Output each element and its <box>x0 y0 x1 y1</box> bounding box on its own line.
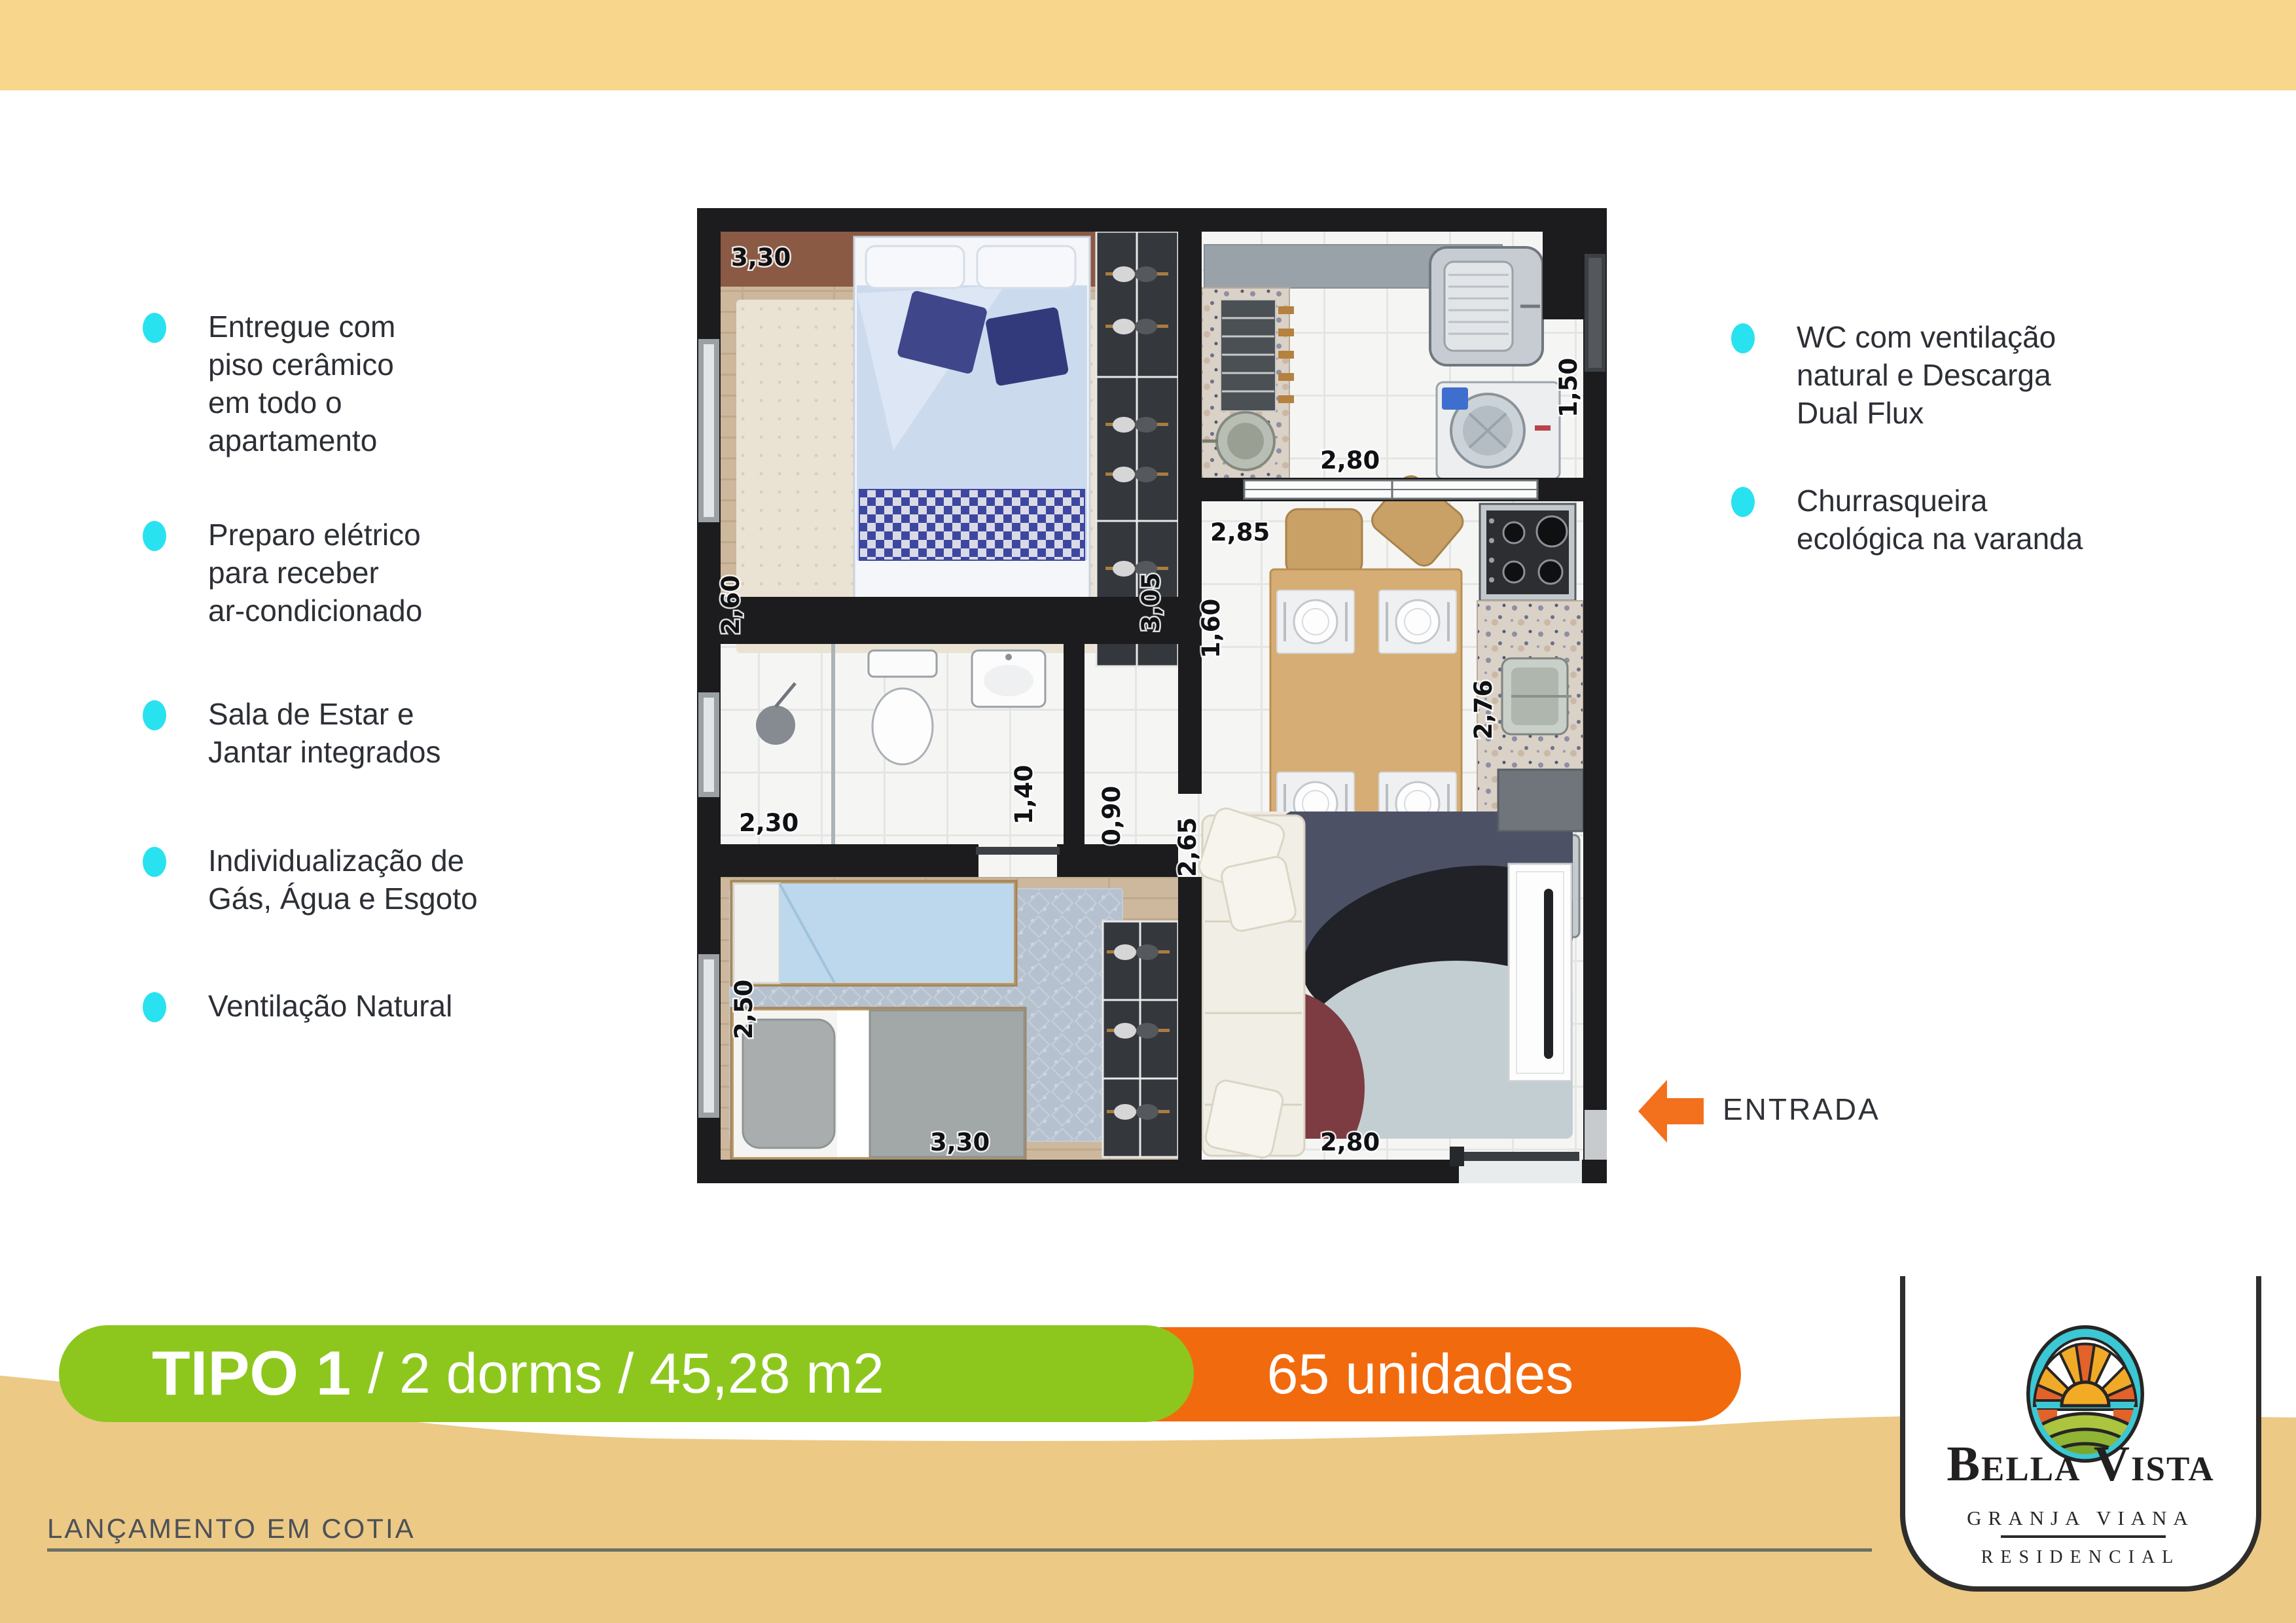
top-band <box>0 0 2296 90</box>
dim-label: 3,30 <box>930 1128 990 1156</box>
dim-label: 2,60 <box>717 575 745 635</box>
units-pill-label: 65 unidades <box>1267 1342 1574 1407</box>
dim-label: 2,65 <box>1174 817 1202 877</box>
dim-label: 3,30 <box>731 243 791 272</box>
feature-text: Ventilação Natural <box>208 987 452 1025</box>
logo-tagline: RESIDENCIAL <box>1905 1547 2256 1568</box>
dim-label: 1,40 <box>1010 765 1038 825</box>
feature-text: Individualização de Gás, Água e Esgoto <box>208 842 478 918</box>
feature-item: Ventilação Natural <box>143 987 452 1025</box>
bullet-icon <box>143 847 166 877</box>
bullet-icon <box>1731 487 1755 517</box>
bullet-icon <box>143 700 166 730</box>
feature-text: WC com ventilação natural e Descarga Dua… <box>1797 318 2056 432</box>
entrance-arrow-icon <box>1638 1079 1704 1144</box>
dim-label: 2,76 <box>1469 680 1498 740</box>
dim-label: 3,05 <box>1137 573 1165 632</box>
feature-text: Churrasqueira ecológica na varanda <box>1797 482 2083 558</box>
flyer-page: Entregue com piso cerâmico em todo o apa… <box>0 0 2296 1623</box>
launch-text: LANÇAMENTO EM COTIA <box>47 1513 416 1544</box>
type-pill-bold: TIPO 1 <box>152 1338 351 1410</box>
logo-name: Bella Vista <box>1905 1436 2256 1493</box>
bullet-icon <box>143 313 166 343</box>
type-pill: TIPO 1 / 2 dorms / 45,28 m2 <box>59 1325 1194 1422</box>
feature-item: Preparo elétrico para receber ar-condici… <box>143 516 422 630</box>
living-room <box>1196 750 1607 1183</box>
dim-label: 2,50 <box>730 980 758 1039</box>
floor-plan: 3,30 2,60 3,05 2,85 2,80 1,50 1,60 2,76 … <box>697 208 1607 1183</box>
dim-label: 2,30 <box>739 809 798 837</box>
logo-subtitle: GRANJA VIANA <box>1905 1507 2256 1530</box>
dim-label: 2,85 <box>1210 518 1270 546</box>
dim-label: 2,80 <box>1320 1128 1380 1156</box>
dim-label: 0,90 <box>1098 786 1126 846</box>
bullet-icon <box>1731 323 1755 353</box>
feature-item: Sala de Estar e Jantar integrados <box>143 695 440 771</box>
entrance-label: ENTRADA <box>1723 1092 1880 1127</box>
feature-item: Entregue com piso cerâmico em todo o apa… <box>143 308 395 459</box>
launch-divider <box>47 1548 1872 1552</box>
feature-item: Individualização de Gás, Água e Esgoto <box>143 842 478 918</box>
feature-text: Entregue com piso cerâmico em todo o apa… <box>208 308 395 459</box>
bedroom-2 <box>730 881 1122 1160</box>
feature-text: Sala de Estar e Jantar integrados <box>208 695 440 771</box>
dim-label: 1,50 <box>1554 358 1583 418</box>
dim-label: 1,60 <box>1197 599 1225 658</box>
logo-card: Bella Vista GRANJA VIANA RESIDENCIAL <box>1900 1276 2261 1592</box>
bullet-icon <box>143 992 166 1022</box>
feature-item: Churrasqueira ecológica na varanda <box>1731 482 2083 558</box>
dim-label: 2,80 <box>1320 446 1380 474</box>
logo-divider <box>2001 1535 2166 1538</box>
type-pill-rest: / 2 dorms / 45,28 m2 <box>368 1342 884 1406</box>
wardrobe <box>1103 921 1178 1157</box>
feature-item: WC com ventilação natural e Descarga Dua… <box>1731 318 2056 432</box>
feature-text: Preparo elétrico para receber ar-condici… <box>208 516 422 630</box>
bullet-icon <box>143 521 166 551</box>
